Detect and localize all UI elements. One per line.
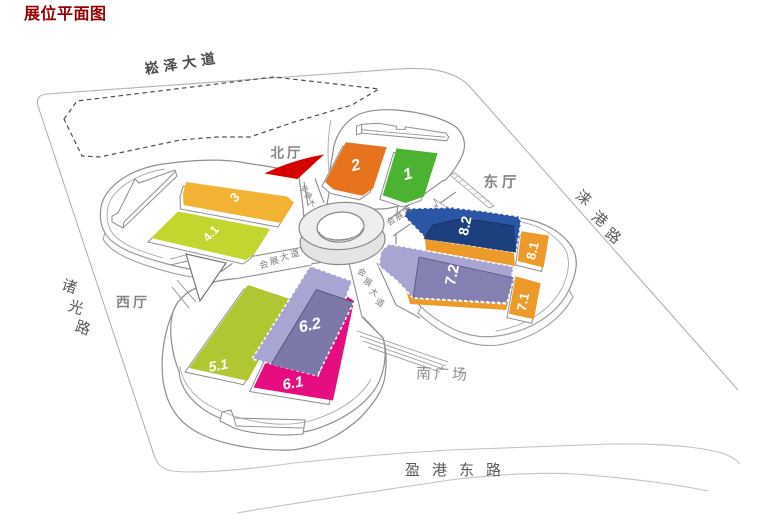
svg-text:盈港东路: 盈港东路 xyxy=(405,462,513,479)
svg-text:5.1: 5.1 xyxy=(207,356,229,375)
svg-text:路: 路 xyxy=(73,318,93,339)
svg-text:港: 港 xyxy=(588,208,610,231)
svg-text:诸: 诸 xyxy=(59,277,79,298)
svg-text:北厅: 北厅 xyxy=(271,146,304,161)
svg-text:东厅: 东厅 xyxy=(484,173,521,191)
svg-text:6.1: 6.1 xyxy=(281,373,304,393)
svg-text:光: 光 xyxy=(66,298,86,319)
svg-text:南广场: 南广场 xyxy=(416,365,471,384)
svg-text:崧泽大道: 崧泽大道 xyxy=(143,49,221,77)
svg-text:路: 路 xyxy=(602,225,624,248)
svg-text:西厅: 西厅 xyxy=(116,294,150,310)
